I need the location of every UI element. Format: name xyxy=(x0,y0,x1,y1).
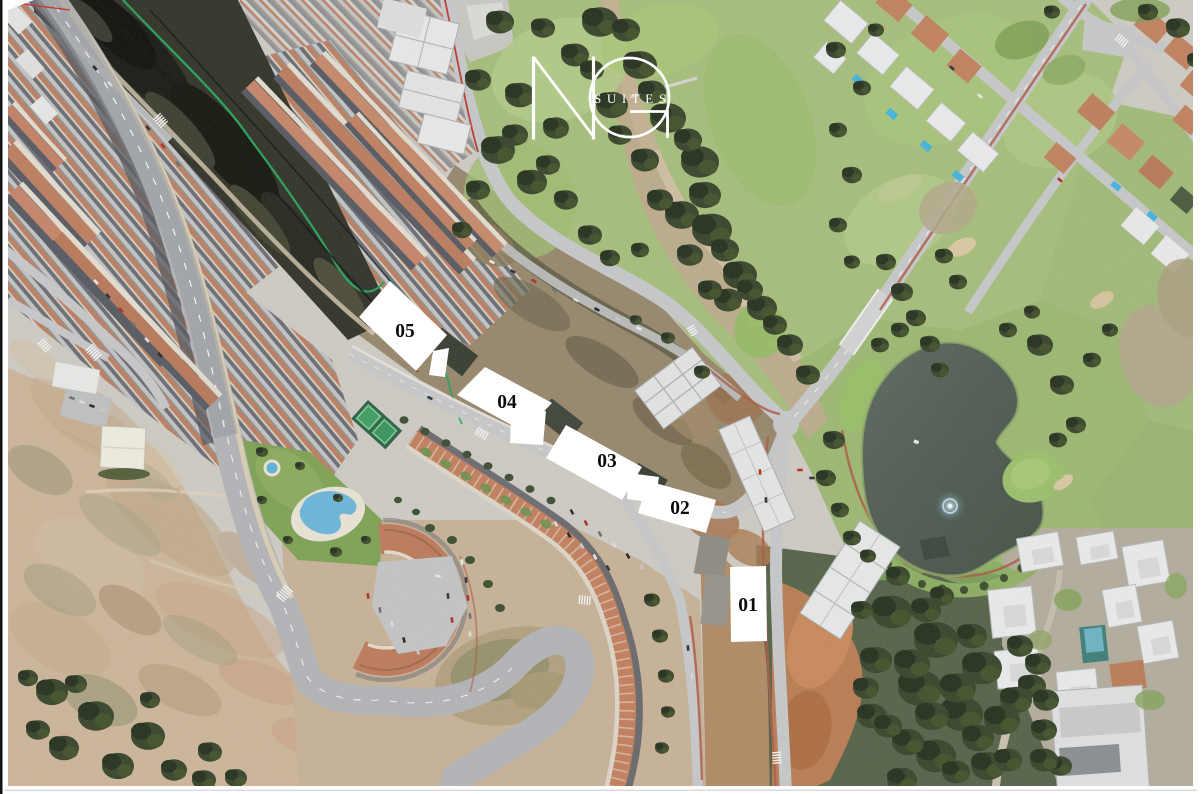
svg-text:02: 02 xyxy=(670,498,690,519)
svg-text:03: 03 xyxy=(597,451,617,472)
svg-text:01: 01 xyxy=(738,595,758,616)
svg-text:SUITES: SUITES xyxy=(594,91,672,106)
svg-text:05: 05 xyxy=(395,321,415,342)
svg-text:04: 04 xyxy=(497,392,517,413)
